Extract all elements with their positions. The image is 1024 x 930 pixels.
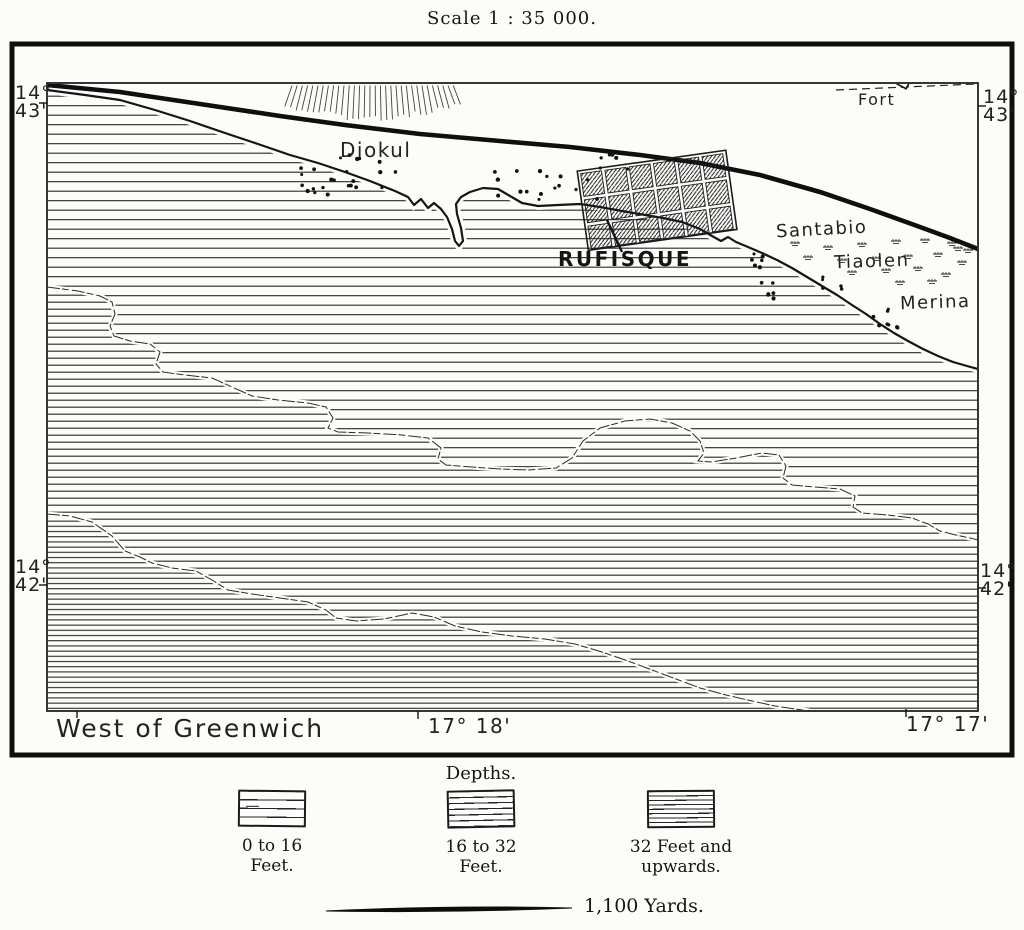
legend-label-shallow: 0 to 16 Feet.	[202, 836, 342, 876]
scale-bar-line	[326, 907, 572, 912]
lat-label-mid-left: 14° 42'	[15, 558, 52, 594]
lat-label-top-left: 14° 43'	[15, 84, 52, 120]
legend-item-mid: 16 to 32 Feet.	[411, 790, 551, 877]
label-fort: Fort	[858, 90, 895, 109]
legend-item-deep: 32 Feet and upwards.	[611, 790, 751, 877]
meridian-note: West of Greenwich	[56, 714, 324, 743]
scale-bar-label: 1,100 Yards.	[584, 895, 704, 917]
legend-label-mid: 16 to 32 Feet.	[411, 837, 551, 877]
legend-label-deep: 32 Feet and upwards.	[611, 837, 751, 877]
map-sheet: Scale 1 : 35 000.	[0, 0, 1024, 930]
legend-swatch-32ft-up	[647, 790, 715, 829]
label-rufisque: RUFISQUE	[558, 247, 692, 271]
lat-label-top-right: 14° 43'	[983, 88, 1020, 124]
legend-item-shallow: 0 to 16 Feet.	[202, 790, 342, 876]
fort-symbol	[897, 70, 913, 89]
label-diokul: Diokul	[340, 138, 411, 162]
lon-label-18: 17° 18'	[428, 714, 511, 738]
hill-hachures	[285, 86, 461, 121]
swatch-mark	[246, 806, 259, 807]
lon-label-17: 17° 17'	[906, 712, 989, 736]
legend-title: Depths.	[411, 763, 551, 784]
legend-swatch-16-32ft	[447, 789, 516, 828]
label-merina: Merina	[900, 291, 971, 314]
lat-label-mid-right: 14° 42'	[980, 562, 1017, 598]
label-tiaolen: Tiaolen	[834, 250, 910, 274]
legend-swatch-0-16ft	[238, 790, 306, 828]
sea-hatching	[47, 90, 978, 711]
